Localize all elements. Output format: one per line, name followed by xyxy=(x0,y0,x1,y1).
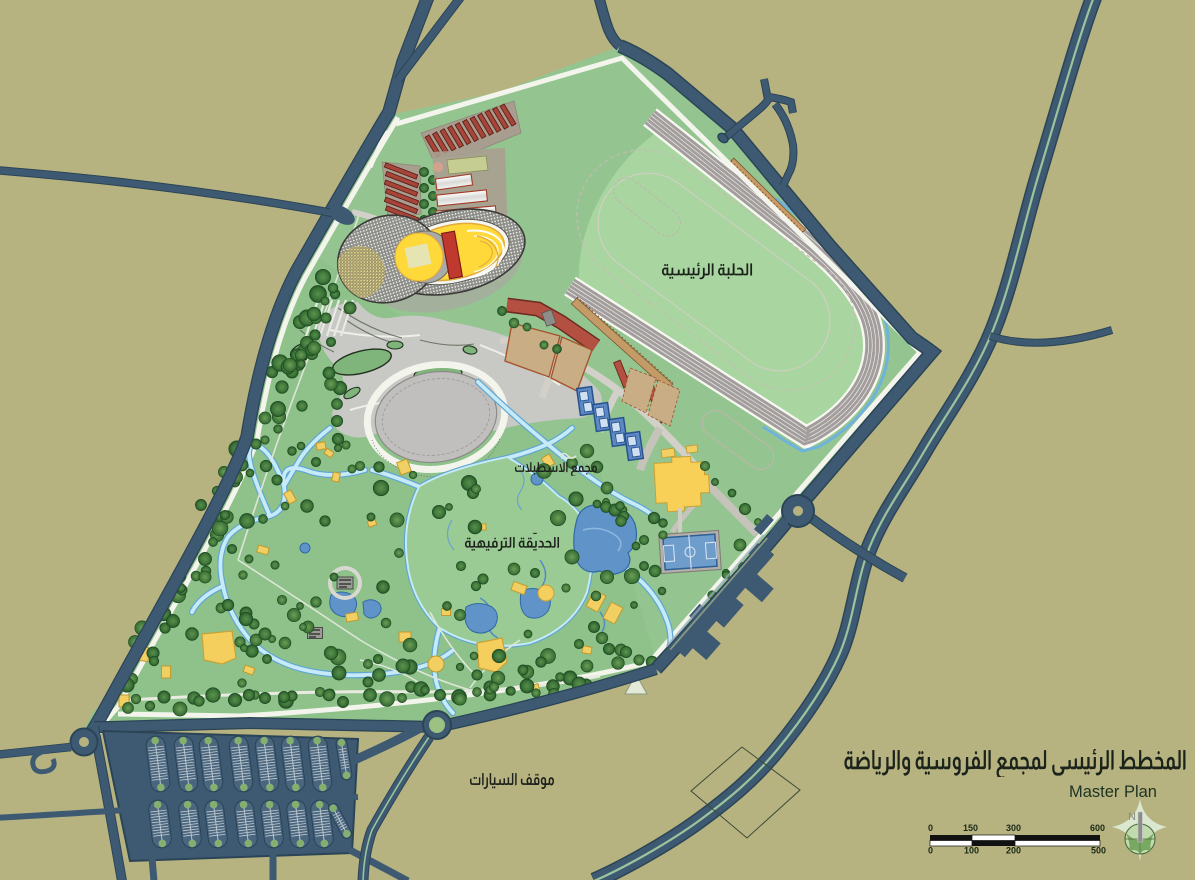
svg-text:600: 600 xyxy=(1090,823,1105,833)
svg-text:Master Plan: Master Plan xyxy=(1069,783,1157,801)
svg-text:0: 0 xyxy=(928,846,933,856)
svg-text:N: N xyxy=(1128,811,1136,823)
svg-text:200: 200 xyxy=(1006,846,1021,856)
svg-text:150: 150 xyxy=(963,823,978,833)
svg-text:0: 0 xyxy=(928,823,933,833)
svg-text:500: 500 xyxy=(1091,846,1106,856)
svg-text:100: 100 xyxy=(964,846,979,856)
svg-text:300: 300 xyxy=(1006,823,1021,833)
